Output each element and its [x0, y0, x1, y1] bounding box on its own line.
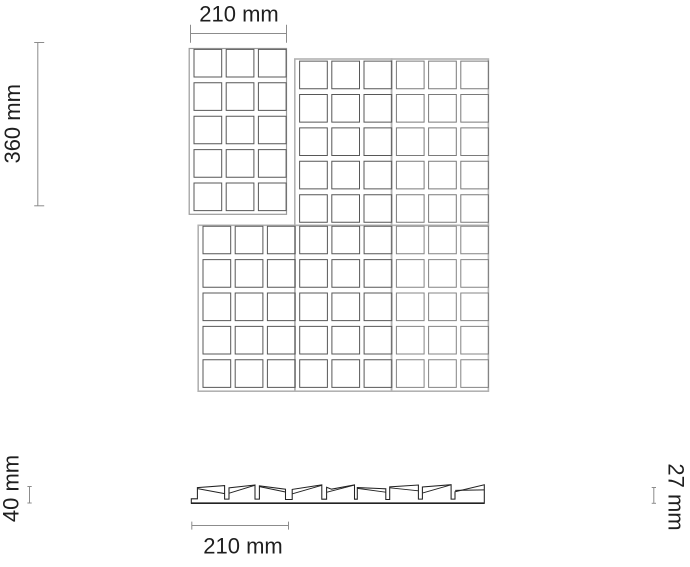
svg-text:40 mm: 40 mm — [0, 455, 23, 522]
svg-text:27 mm: 27 mm — [664, 463, 689, 530]
svg-text:210 mm: 210 mm — [199, 2, 278, 27]
svg-text:360 mm: 360 mm — [0, 84, 25, 163]
svg-text:210 mm: 210 mm — [203, 534, 282, 559]
